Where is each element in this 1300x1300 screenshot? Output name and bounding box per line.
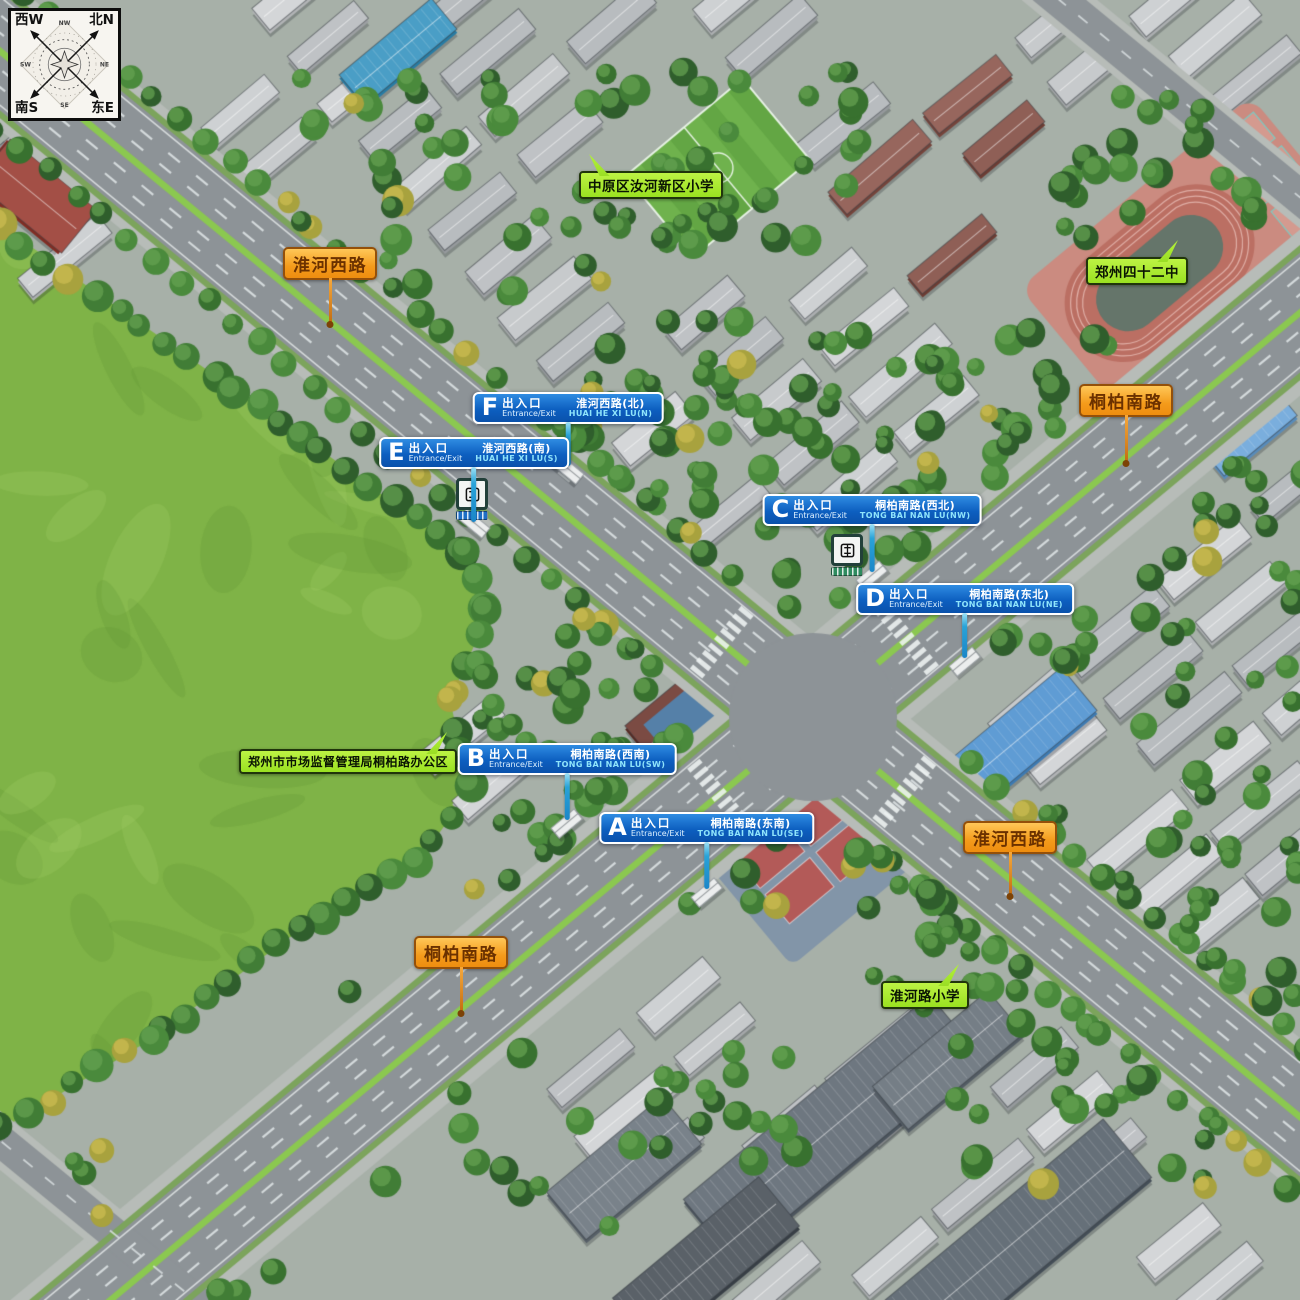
- road-label-text: 桐柏南路: [1089, 393, 1163, 413]
- road-label-huaihe-west-2: 淮河西路: [963, 821, 1057, 854]
- exit-en: Entrance/Exit: [631, 830, 685, 838]
- exit-road-cn: 桐柏南路(东南): [711, 817, 791, 830]
- exit-label-a: A 出入口Entrance/Exit 桐柏南路(东南)TONG BAI NAN …: [599, 812, 814, 844]
- exit-road-en: TONG BAI NAN LU(NW): [860, 512, 970, 520]
- exit-letter: E: [388, 441, 404, 464]
- exit-road-en: TONG BAI NAN LU(NE): [956, 601, 1063, 609]
- exit-label-f: F 出入口Entrance/Exit 淮河西路(北)HUAI HE XI LU(…: [473, 392, 664, 424]
- exit-cn: 出入口: [889, 588, 930, 601]
- exit-road-en: HUAI HE XI LU(S): [475, 455, 558, 463]
- exit-label-c: C 出入口Entrance/Exit 桐柏南路(西北)TONG BAI NAN …: [763, 494, 982, 526]
- compass-minor-ne: NE: [100, 61, 109, 68]
- poi-label-text: 中原区汝河新区小学: [588, 179, 714, 195]
- exit-letter: F: [482, 396, 498, 419]
- poi-label-zhengzhou-no42-middle-school: 郑州四十二中: [1086, 257, 1188, 285]
- poi-label-zhongyuan-ruhe-primary-school: 中原区汝河新区小学: [579, 171, 723, 199]
- exit-label-d: D 出入口Entrance/Exit 桐柏南路(东北)TONG BAI NAN …: [856, 583, 1074, 615]
- compass-minor-se: SE: [60, 102, 68, 109]
- metro-station-sign: [831, 534, 863, 576]
- compass-minor-sw: SW: [20, 61, 31, 68]
- poi-label-text: 郑州市市场监督管理局桐柏路办公区: [248, 755, 448, 769]
- compass-south-label: 南S: [15, 102, 38, 116]
- exit-letter: A: [608, 816, 627, 839]
- poi-label-text: 淮河路小学: [890, 989, 960, 1005]
- exit-road-cn: 淮河西路(南): [482, 442, 551, 455]
- label-stem: [329, 278, 332, 325]
- poi-label-market-supervision-office: 郑州市市场监督管理局桐柏路办公区: [239, 749, 457, 774]
- exit-road-en: TONG BAI NAN LU(SE): [698, 830, 804, 838]
- compass-minor-nw: NW: [59, 20, 71, 27]
- label-stem: [1125, 415, 1128, 464]
- exit-road-cn: 淮河西路(北): [576, 397, 645, 410]
- exit-en: Entrance/Exit: [409, 455, 463, 463]
- compass-north-label: 北N: [89, 14, 114, 28]
- exit-road-cn: 桐柏南路(东北): [969, 588, 1049, 601]
- exit-en: Entrance/Exit: [502, 410, 556, 418]
- poi-label-huaihe-road-primary-school: 淮河路小学: [881, 981, 969, 1009]
- exit-road-en: TONG BAI NAN LU(SW): [556, 761, 666, 769]
- road-label-huaihe-west-1: 淮河西路: [283, 247, 377, 280]
- exit-stem: [705, 842, 710, 889]
- label-stem: [460, 967, 463, 1014]
- exit-label-b: B 出入口Entrance/Exit 桐柏南路(西南)TONG BAI NAN …: [458, 743, 677, 775]
- compass-west-label: 西W: [15, 14, 43, 28]
- exit-stem: [870, 524, 875, 572]
- exit-stem: [472, 467, 477, 522]
- exit-road-en: HUAI HE XI LU(N): [569, 410, 653, 418]
- exit-en: Entrance/Exit: [889, 601, 943, 609]
- metro-exit-map: 西W 北N 南S 东E NW NE SE SW 淮河西路 桐柏南路 淮河西路 桐…: [0, 0, 1300, 1300]
- exit-road-cn: 桐柏南路(西南): [570, 748, 650, 761]
- metro-logo-icon: [831, 534, 863, 566]
- poi-label-text: 郑州四十二中: [1095, 265, 1179, 281]
- exit-cn: 出入口: [631, 817, 672, 830]
- exit-letter: C: [772, 498, 790, 521]
- road-label-text: 淮河西路: [293, 256, 367, 276]
- exit-letter: B: [467, 747, 485, 770]
- station-name-band: [831, 567, 863, 576]
- road-label-text: 桐柏南路: [424, 945, 498, 965]
- exit-cn: 出入口: [502, 397, 543, 410]
- exit-cn: 出入口: [489, 748, 530, 761]
- exit-stem: [564, 773, 569, 820]
- exit-en: Entrance/Exit: [489, 761, 543, 769]
- compass-east-label: 东E: [91, 102, 114, 116]
- exit-letter: D: [865, 587, 885, 610]
- exit-en: Entrance/Exit: [793, 512, 847, 520]
- exit-road-cn: 桐柏南路(西北): [875, 499, 955, 512]
- label-stem: [1009, 852, 1012, 897]
- exit-stem: [963, 613, 968, 658]
- exit-cn: 出入口: [409, 442, 450, 455]
- road-label-tongbai-south-2: 桐柏南路: [414, 936, 508, 969]
- road-label-tongbai-south-1: 桐柏南路: [1079, 384, 1173, 417]
- compass-rose: 西W 北N 南S 东E NW NE SE SW: [8, 8, 121, 121]
- exit-label-e: E 出入口Entrance/Exit 淮河西路(南)HUAI HE XI LU(…: [379, 437, 569, 469]
- road-label-text: 淮河西路: [973, 830, 1047, 850]
- exit-cn: 出入口: [793, 499, 834, 512]
